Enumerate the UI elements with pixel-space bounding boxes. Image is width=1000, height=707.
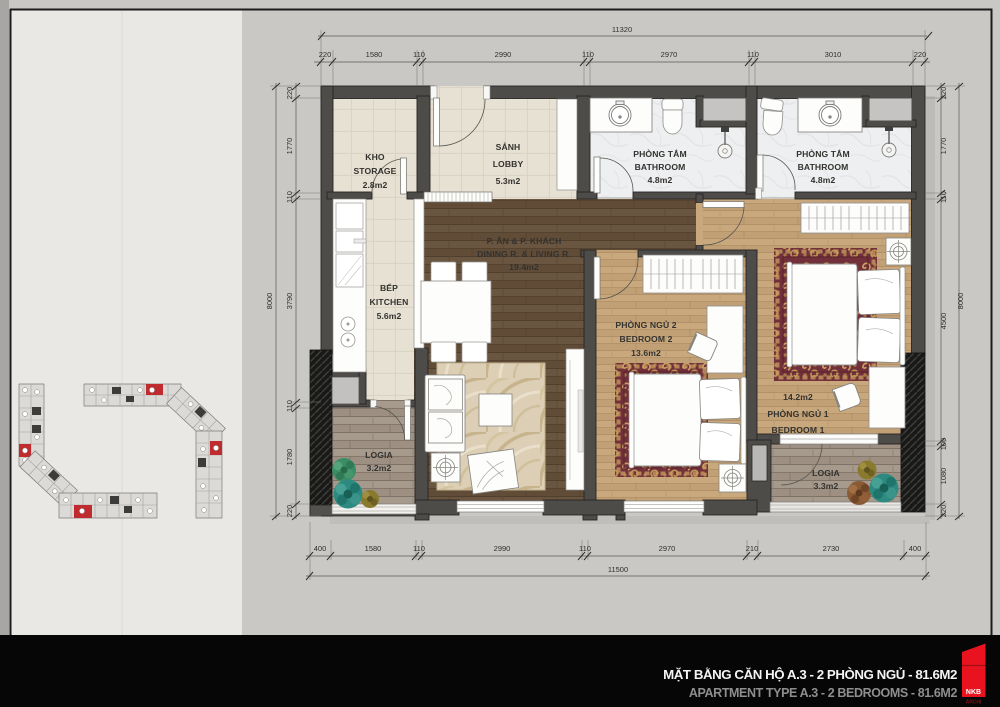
- svg-text:2.8m2: 2.8m2: [363, 180, 388, 190]
- svg-text:KHO: KHO: [365, 152, 385, 162]
- svg-text:STORAGE: STORAGE: [353, 166, 396, 176]
- svg-text:11320: 11320: [612, 25, 632, 34]
- svg-text:PHÒNG NGỦ 2: PHÒNG NGỦ 2: [615, 319, 676, 330]
- svg-text:BEDROOM 2: BEDROOM 2: [620, 334, 673, 344]
- svg-text:BATHROOM: BATHROOM: [798, 162, 849, 172]
- svg-text:BEDROOM 1: BEDROOM 1: [772, 425, 825, 435]
- svg-text:210: 210: [746, 544, 759, 553]
- svg-text:1780: 1780: [285, 449, 294, 466]
- svg-text:3.2m2: 3.2m2: [367, 463, 392, 473]
- svg-text:4500: 4500: [939, 313, 948, 330]
- svg-text:220: 220: [939, 505, 948, 518]
- svg-text:NKB: NKB: [966, 689, 981, 696]
- svg-text:1580: 1580: [365, 544, 382, 553]
- svg-text:LOBBY: LOBBY: [493, 159, 524, 169]
- svg-text:110: 110: [413, 50, 425, 59]
- svg-text:4.8m2: 4.8m2: [648, 175, 673, 185]
- svg-text:BATHROOM: BATHROOM: [635, 162, 686, 172]
- svg-text:220: 220: [319, 50, 332, 59]
- svg-text:1580: 1580: [366, 50, 383, 59]
- svg-text:220: 220: [285, 87, 294, 100]
- svg-text:2970: 2970: [661, 50, 678, 59]
- svg-text:8000: 8000: [265, 293, 274, 310]
- svg-text:2730: 2730: [823, 544, 840, 553]
- svg-text:BẾP: BẾP: [380, 283, 398, 293]
- svg-text:2970: 2970: [659, 544, 676, 553]
- svg-text:110: 110: [285, 191, 294, 203]
- svg-text:PHÒNG TẮM: PHÒNG TẮM: [796, 148, 849, 159]
- svg-text:SẢNH: SẢNH: [496, 141, 521, 152]
- svg-text:APARTMENT TYPE A.3 - 2 BEDROOM: APARTMENT TYPE A.3 - 2 BEDROOMS - 81.6M2: [689, 686, 958, 700]
- svg-text:220: 220: [914, 50, 927, 59]
- svg-text:220: 220: [939, 87, 948, 100]
- svg-text:110: 110: [582, 50, 594, 59]
- svg-text:11500: 11500: [608, 565, 628, 574]
- svg-text:110: 110: [413, 544, 425, 553]
- svg-text:5.6m2: 5.6m2: [377, 311, 402, 321]
- svg-text:DINING R. & LIVING R.: DINING R. & LIVING R.: [477, 249, 571, 259]
- svg-text:3010: 3010: [825, 50, 842, 59]
- svg-text:4.8m2: 4.8m2: [811, 175, 836, 185]
- svg-text:400: 400: [314, 544, 327, 553]
- svg-text:1080: 1080: [939, 468, 948, 485]
- svg-text:LOGIA: LOGIA: [365, 450, 393, 460]
- svg-text:P. ĂN & P. KHÁCH: P. ĂN & P. KHÁCH: [487, 236, 562, 246]
- svg-text:KITCHEN: KITCHEN: [370, 297, 409, 307]
- svg-text:110: 110: [747, 50, 759, 59]
- svg-text:14.2m2: 14.2m2: [783, 392, 813, 402]
- svg-text:110: 110: [579, 544, 591, 553]
- svg-text:MẶT BẰNG CĂN HỘ A.3 - 2 PHÒNG: MẶT BẰNG CĂN HỘ A.3 - 2 PHÒNG NGỦ - 81.6…: [663, 667, 957, 682]
- svg-text:19.4m2: 19.4m2: [509, 262, 539, 272]
- svg-text:2990: 2990: [494, 544, 511, 553]
- svg-text:220: 220: [285, 505, 294, 518]
- svg-text:110: 110: [285, 400, 294, 412]
- svg-text:5.3m2: 5.3m2: [496, 176, 521, 186]
- svg-text:2990: 2990: [495, 50, 512, 59]
- svg-text:PHÒNG NGỦ 1: PHÒNG NGỦ 1: [767, 408, 828, 419]
- svg-text:3.3m2: 3.3m2: [814, 481, 839, 491]
- svg-text:13.6m2: 13.6m2: [631, 348, 661, 358]
- svg-text:110: 110: [939, 191, 948, 203]
- svg-text:8000: 8000: [956, 293, 965, 310]
- svg-text:400: 400: [909, 544, 922, 553]
- svg-text:1770: 1770: [285, 138, 294, 155]
- svg-text:3790: 3790: [285, 293, 294, 310]
- svg-text:PHÒNG TẮM: PHÒNG TẮM: [633, 148, 686, 159]
- svg-text:ARCHI: ARCHI: [966, 700, 982, 706]
- svg-text:LOGIA: LOGIA: [812, 468, 840, 478]
- svg-text:100: 100: [939, 438, 948, 451]
- svg-text:1770: 1770: [939, 138, 948, 155]
